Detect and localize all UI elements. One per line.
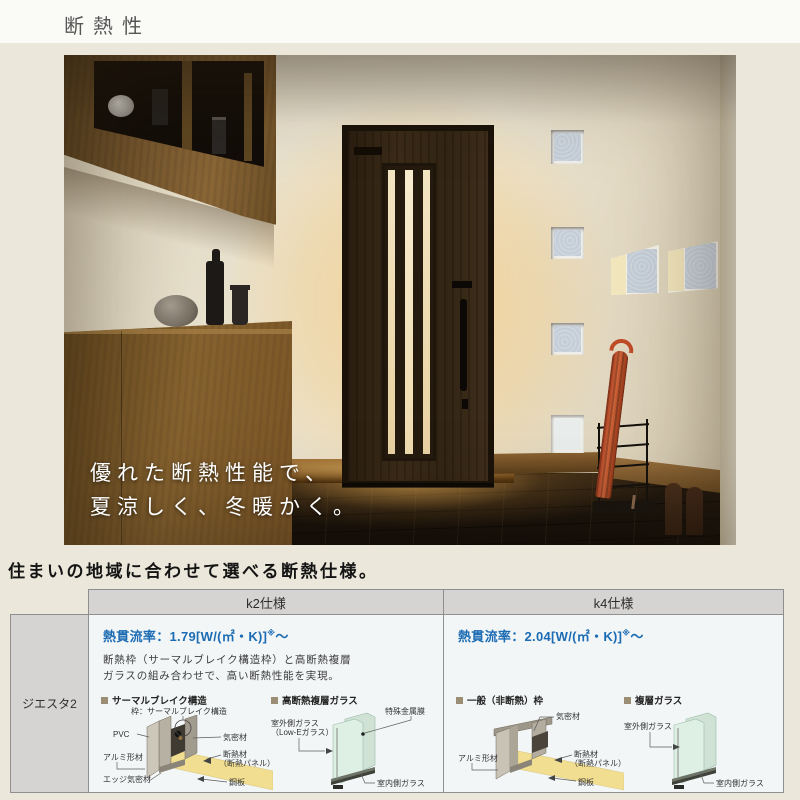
pvc-label: PVC <box>113 730 129 739</box>
hero-caption: 優れた断熱性能で、 夏涼しく、冬暖かく。 <box>90 457 360 525</box>
aluminum-label: アルミ形材 <box>103 753 143 762</box>
square-bullet-icon <box>456 697 463 704</box>
frame-diagram-k2: サーマルブレイク構造 <box>101 693 273 791</box>
column-header-k4-label: k4仕様 <box>594 593 634 612</box>
airtight-label: 気密材 <box>556 712 580 721</box>
entryway-photo: 優れた断熱性能で、 夏涼しく、冬暖かく。 <box>64 55 736 545</box>
airtight-label: 気密材 <box>223 733 247 742</box>
steel-label: 鋼板 <box>229 778 245 787</box>
square-bullet-icon <box>101 697 108 704</box>
u-value-k4: 熱貫流率：2.04[W/(㎡・K)]※～ <box>458 626 644 645</box>
diagram-title: 複層ガラス <box>624 693 774 707</box>
inner-glass-label: 室内側ガラス <box>716 779 764 788</box>
insulation-label: 断熱材 <box>223 750 247 759</box>
glass-diagram-k4: 複層ガラス 室外側ガラス 室内側ガラス <box>624 693 774 791</box>
column-header-k2: k2仕様 <box>88 589 444 615</box>
frame-diagram-k4: 一般（非断熱）枠 気密材 <box>456 693 624 791</box>
diagram-title: 一般（非断熱）枠 <box>456 693 624 707</box>
row-label: ジエスタ2 <box>22 695 77 712</box>
metal-film-label: 特殊金属膜 <box>385 707 425 716</box>
hero-caption-line1: 優れた断熱性能で、 <box>90 457 360 491</box>
spec-cell-k4: 熱貫流率：2.04[W/(㎡・K)]※～ 一般（非断熱）枠 <box>443 614 784 793</box>
insulation-label2: （断熱パネル） <box>570 759 626 768</box>
outer-glass-label2: （Low-Eガラス） <box>271 728 334 737</box>
diagram-title: 高断熱複層ガラス <box>271 693 437 707</box>
row-label-cell: ジエスタ2 <box>10 614 89 793</box>
square-bullet-icon <box>624 697 631 704</box>
page-title: 断熱性 <box>64 10 151 39</box>
frame-label: 枠：サーマルブレイク構造 <box>131 707 227 716</box>
square-bullet-icon <box>271 697 278 704</box>
steel-label: 鋼板 <box>578 778 594 787</box>
hero-caption-line2: 夏涼しく、冬暖かく。 <box>90 491 360 525</box>
glass-diagram-k2: 高断熱複層ガラス 特殊金属膜 室外側ガラス （ <box>271 693 437 791</box>
catalog-page: 断熱性 <box>0 0 800 800</box>
inner-glass-label: 室内側ガラス <box>377 779 425 788</box>
edge-airtight-label: エッジ気密材 <box>103 775 151 784</box>
u-value-k2: 熱貫流率：1.79[W/(㎡・K)]※～ <box>103 626 289 645</box>
insulation-label: 断熱材 <box>574 750 598 759</box>
column-header-k4: k4仕様 <box>443 589 784 615</box>
spec-cell-k2: 熱貫流率：1.79[W/(㎡・K)]※～ 断熱枠（サーマルブレイク構造枠）と高断… <box>88 614 444 793</box>
section-heading: 住まいの地域に合わせて選べる断熱仕様。 <box>8 557 379 582</box>
description-k2: 断熱枠（サーマルブレイク構造枠）と高断熱複層 ガラスの組み合わせで、高い断熱性能… <box>103 652 351 684</box>
frame-cross-section-illustration <box>456 707 624 791</box>
outer-glass-label: 室外側ガラス <box>271 719 319 728</box>
aluminum-label: アルミ形材 <box>458 754 498 763</box>
column-header-k2-label: k2仕様 <box>246 593 286 612</box>
outer-glass-label: 室外側ガラス <box>624 722 672 731</box>
insulation-label2: （断熱パネル） <box>219 759 275 768</box>
diagram-title: サーマルブレイク構造 <box>101 693 273 707</box>
